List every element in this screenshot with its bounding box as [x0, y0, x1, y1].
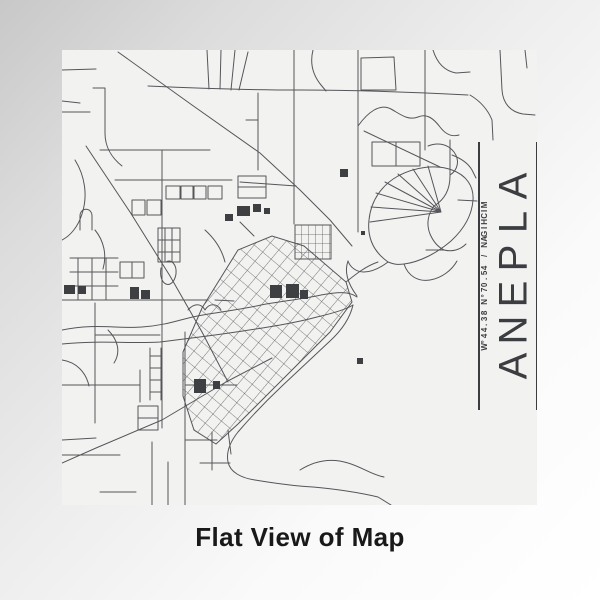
map-roads-right: [426, 140, 477, 251]
city-name-text: ALPENA: [492, 142, 535, 410]
map-paper: [62, 50, 537, 505]
downtown-grid: [183, 225, 352, 444]
golf-fan: [346, 166, 473, 296]
product-image: { "map_label": { "city": "ALPENA", "subt…: [0, 0, 600, 600]
label-rule-left: [478, 142, 480, 410]
north-gridlet: [295, 225, 331, 259]
street-map: [62, 50, 537, 505]
caption-text: Flat View of Map: [0, 522, 600, 553]
city-subtitle-text: MICHIGAN / 45.07°N 83.44°W: [478, 142, 492, 410]
label-rule-right: [536, 142, 538, 410]
city-label-panel: MICHIGAN / 45.07°N 83.44°W ALPENA: [478, 142, 537, 410]
